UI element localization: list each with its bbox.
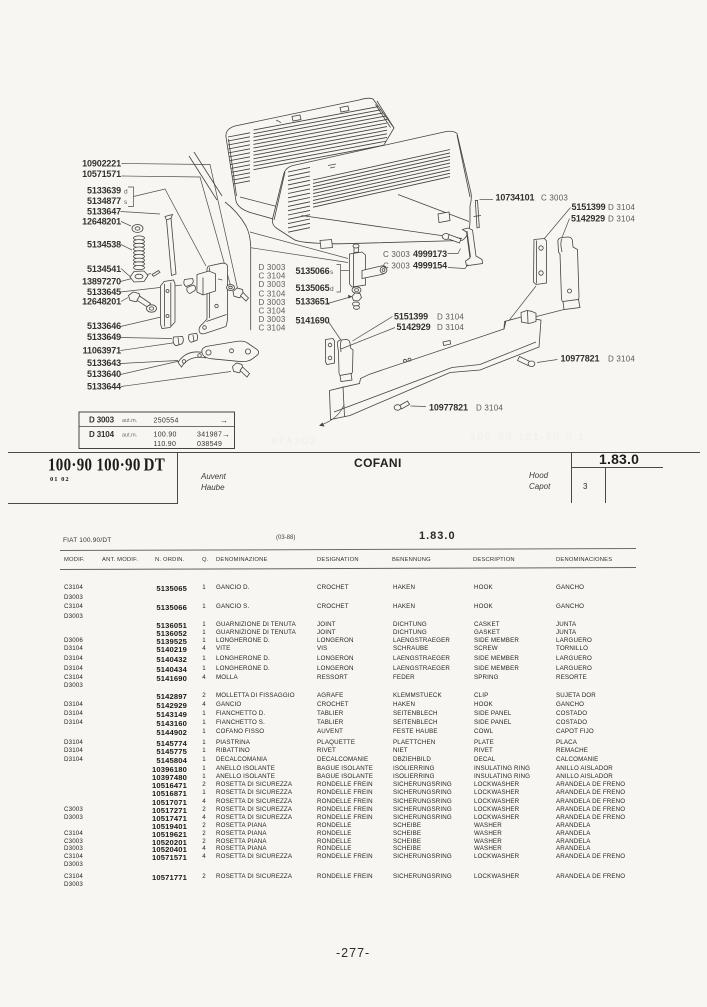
svg-text:aut.m.: aut.m. bbox=[122, 433, 138, 439]
svg-text:D 3003: D 3003 bbox=[259, 280, 286, 289]
svg-text:10977821: 10977821 bbox=[561, 354, 600, 364]
svg-text:C 3104: C 3104 bbox=[259, 324, 286, 333]
svg-text:5135065: 5135065 bbox=[296, 283, 330, 293]
svg-text:5133647: 5133647 bbox=[87, 207, 121, 217]
svg-text:s: s bbox=[124, 199, 128, 206]
svg-text:100.90: 100.90 bbox=[154, 432, 177, 439]
svg-text:4999173: 4999173 bbox=[413, 249, 447, 259]
svg-text:d: d bbox=[330, 286, 334, 293]
svg-text:D 3003: D 3003 bbox=[89, 416, 115, 425]
svg-text:12648201: 12648201 bbox=[82, 297, 121, 307]
svg-text:5134877: 5134877 bbox=[87, 196, 121, 206]
svg-text:5133645: 5133645 bbox=[87, 287, 121, 297]
svg-text:110.90: 110.90 bbox=[154, 441, 177, 448]
svg-text:4999154: 4999154 bbox=[413, 261, 447, 271]
svg-text:5142929: 5142929 bbox=[397, 322, 431, 332]
svg-text:5133649: 5133649 bbox=[87, 332, 121, 342]
svg-text:11063971: 11063971 bbox=[83, 346, 121, 356]
svg-text:D 3104: D 3104 bbox=[89, 430, 115, 439]
svg-text:D 3104: D 3104 bbox=[608, 355, 635, 364]
svg-text:5151399: 5151399 bbox=[394, 312, 428, 322]
svg-text:5135066: 5135066 bbox=[296, 266, 330, 276]
svg-text:D 3104: D 3104 bbox=[437, 313, 464, 322]
svg-text:D 3104: D 3104 bbox=[476, 404, 503, 413]
svg-text:5151399: 5151399 bbox=[572, 202, 606, 212]
svg-text:C 3003: C 3003 bbox=[383, 250, 410, 259]
svg-text:13897270: 13897270 bbox=[82, 277, 121, 287]
svg-text:10571571: 10571571 bbox=[82, 169, 121, 179]
svg-text:5133651: 5133651 bbox=[296, 297, 330, 307]
svg-text:038549: 038549 bbox=[197, 441, 222, 448]
svg-text:C 3003: C 3003 bbox=[383, 262, 410, 271]
svg-text:8PA3OΣ: 8PA3OΣ bbox=[272, 436, 318, 446]
svg-text:5133644: 5133644 bbox=[87, 382, 121, 392]
svg-text:10734101: 10734101 bbox=[496, 193, 535, 203]
svg-text:5134538: 5134538 bbox=[87, 240, 121, 250]
svg-text:10902221: 10902221 bbox=[82, 159, 121, 169]
svg-text:C 3003: C 3003 bbox=[541, 194, 568, 203]
svg-text:C 3104: C 3104 bbox=[259, 271, 286, 280]
svg-text:→: → bbox=[222, 430, 230, 439]
svg-text:5133640: 5133640 bbox=[87, 369, 121, 379]
svg-text:D 3104: D 3104 bbox=[608, 215, 635, 224]
svg-text:5134541: 5134541 bbox=[87, 264, 121, 274]
svg-text:C 3104: C 3104 bbox=[259, 306, 286, 315]
svg-text:D 3104: D 3104 bbox=[608, 203, 635, 212]
svg-text:400-90 101-90 0 1: 400-90 101-90 0 1 bbox=[470, 432, 586, 443]
svg-text:5133643: 5133643 bbox=[87, 358, 121, 368]
svg-text:aut.m.: aut.m. bbox=[122, 418, 138, 424]
svg-text:→: → bbox=[220, 416, 228, 425]
svg-text:5133646: 5133646 bbox=[87, 321, 121, 331]
svg-text:10977821: 10977821 bbox=[429, 403, 468, 413]
svg-text:250554: 250554 bbox=[154, 418, 179, 425]
svg-text:12648201: 12648201 bbox=[82, 217, 121, 227]
svg-text:.: . bbox=[585, 113, 587, 122]
svg-text:d: d bbox=[124, 189, 128, 196]
svg-text:D 3104: D 3104 bbox=[437, 323, 464, 332]
svg-text:341987: 341987 bbox=[197, 432, 222, 439]
svg-text:5142929: 5142929 bbox=[571, 214, 605, 224]
svg-text:5133639: 5133639 bbox=[87, 186, 121, 196]
svg-text:s: s bbox=[330, 269, 334, 276]
svg-text:5141690: 5141690 bbox=[296, 316, 330, 326]
